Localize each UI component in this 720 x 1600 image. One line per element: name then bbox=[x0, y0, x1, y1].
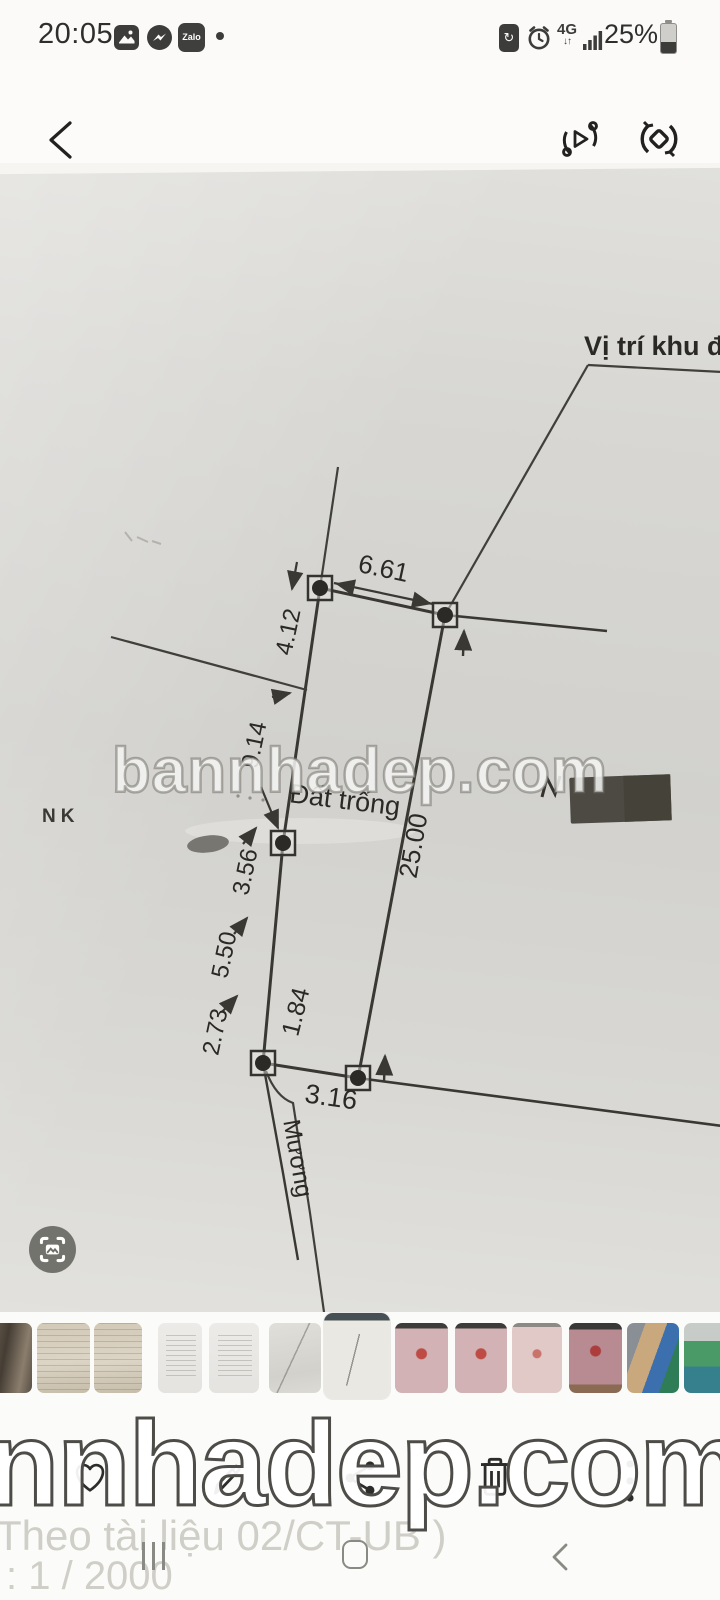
boundary-extension-top bbox=[320, 467, 338, 588]
thumbnail-7-selected[interactable] bbox=[324, 1313, 390, 1399]
road-line-bottom bbox=[358, 1078, 720, 1126]
photo-viewer[interactable]: Vị trí khu đất 6.61 25.00 3.16 1.84 4.12… bbox=[0, 163, 720, 1312]
direction-arrow-top bbox=[463, 631, 464, 656]
thumbnail-8[interactable] bbox=[395, 1323, 448, 1393]
location-underline bbox=[588, 365, 720, 372]
thumbnail-3[interactable] bbox=[94, 1323, 142, 1393]
bottom-panel: Theo tài liệu 02/CT-UB ) : 1 / 2000 nnha… bbox=[0, 1312, 720, 1600]
location-label: Vị trí khu đất bbox=[584, 331, 720, 361]
thumbnail-10[interactable] bbox=[512, 1323, 562, 1393]
nav-back-button[interactable] bbox=[546, 1542, 574, 1572]
thumbnail-1[interactable] bbox=[0, 1323, 32, 1393]
thumbnail-12[interactable] bbox=[627, 1323, 679, 1393]
scan-vision-button[interactable] bbox=[29, 1226, 76, 1273]
thumbnail-9[interactable] bbox=[455, 1323, 507, 1393]
dim-left-3: 3.56 bbox=[227, 846, 263, 897]
dim-right: 25.00 bbox=[393, 811, 434, 880]
canal-label: Mương bbox=[277, 1117, 317, 1199]
screen: { "status_bar": { "time": "20:05", "zalo… bbox=[0, 0, 720, 1600]
gallery-header bbox=[0, 60, 720, 163]
battery-percent-label: 25% bbox=[604, 19, 658, 50]
alarm-icon bbox=[526, 24, 552, 57]
messenger-notification-icon bbox=[147, 25, 172, 50]
signal-strength-icon bbox=[583, 27, 603, 56]
power-saving-icon: ↻ bbox=[499, 24, 519, 52]
recents-button[interactable] bbox=[140, 1542, 170, 1572]
battery-icon bbox=[660, 23, 677, 54]
thumbnail-2[interactable] bbox=[37, 1323, 90, 1393]
status-bar: 20:05 Zalo ↻ 4G↓↑ 25% bbox=[0, 0, 720, 60]
rotate-view-button[interactable] bbox=[636, 116, 682, 162]
zalo-notification-icon: Zalo bbox=[178, 23, 205, 52]
dim-left-1: 4.12 bbox=[270, 606, 306, 657]
road-line-top bbox=[445, 615, 607, 631]
location-leader-line bbox=[445, 365, 588, 615]
faint-pen-marks bbox=[125, 532, 161, 544]
back-button[interactable] bbox=[40, 116, 84, 164]
home-button[interactable] bbox=[342, 1540, 368, 1569]
thumbnail-4[interactable] bbox=[158, 1323, 202, 1393]
thumbnail-6[interactable] bbox=[269, 1323, 321, 1393]
margin-note: NK bbox=[42, 806, 79, 827]
dim-left-5: 2.73 bbox=[197, 1006, 233, 1057]
direction-arrow-bottom bbox=[384, 1056, 385, 1082]
dim-inner: 1.84 bbox=[277, 985, 316, 1039]
dim-left-4: 5.50 bbox=[206, 929, 242, 980]
site-watermark-bottom: nnhadep.com bbox=[0, 1398, 720, 1530]
thumbnail-11[interactable] bbox=[569, 1323, 622, 1393]
dim-bottom: 3.16 bbox=[303, 1078, 359, 1115]
clock: 20:05 bbox=[38, 18, 113, 51]
dim-top: 6.61 bbox=[356, 548, 412, 588]
network-type-indicator: 4G↓↑ bbox=[554, 22, 580, 47]
thumbnail-5[interactable] bbox=[209, 1323, 259, 1393]
more-notifications-dot bbox=[216, 32, 224, 40]
motion-photo-button[interactable] bbox=[557, 116, 603, 162]
site-watermark-center: bannhadep.com bbox=[0, 735, 720, 807]
gallery-notification-icon bbox=[114, 25, 139, 50]
thumbnail-13[interactable] bbox=[684, 1323, 720, 1393]
